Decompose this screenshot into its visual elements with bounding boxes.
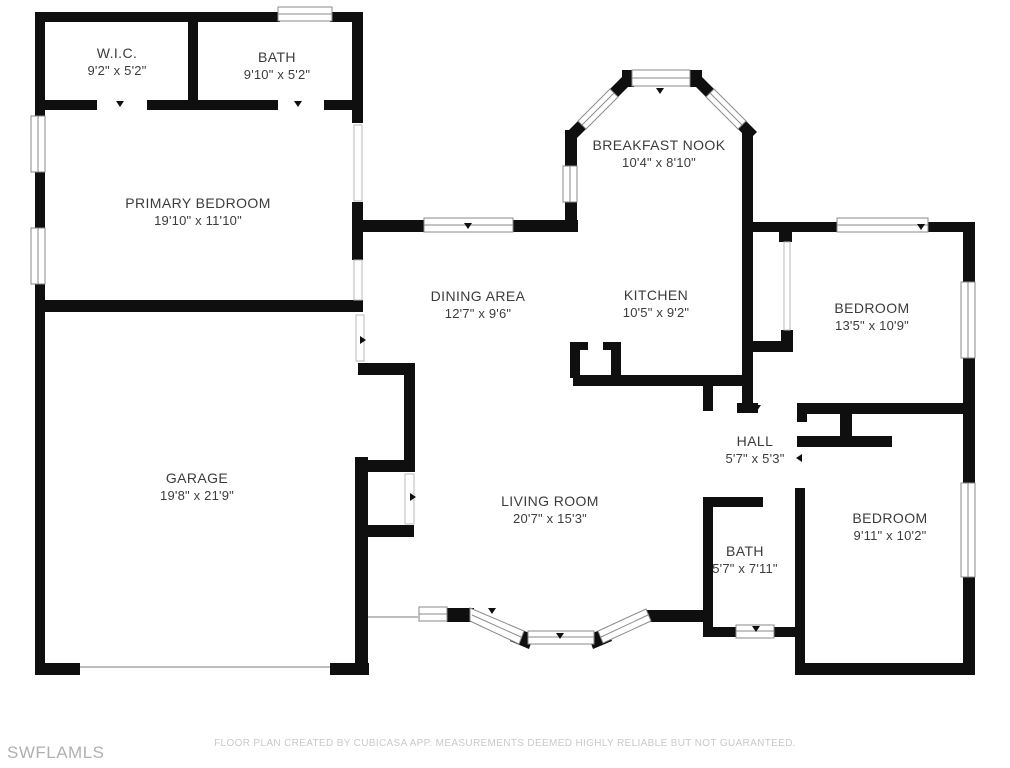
room-name: DINING AREA <box>431 288 526 306</box>
room-name: BATH <box>244 49 310 67</box>
room-dimensions: 13'5" x 10'9" <box>834 318 909 334</box>
room-label-bedroom-se: BEDROOM 9'11" x 10'2" <box>852 510 927 544</box>
room-label-bath-right: BATH 5'7" x 7'11" <box>712 543 778 577</box>
room-name: LIVING ROOM <box>501 493 599 511</box>
disclaimer-text: FLOOR PLAN CREATED BY CUBICASA APP. MEAS… <box>214 738 796 749</box>
room-dimensions: 10'5" x 9'2" <box>623 305 689 321</box>
room-name: KITCHEN <box>623 287 689 305</box>
room-name: BREAKFAST NOOK <box>593 137 726 155</box>
room-label-hall: HALL 5'7" x 5'3" <box>725 433 784 467</box>
room-label-breakfast-nook: BREAKFAST NOOK 10'4" x 8'10" <box>593 137 726 171</box>
room-dimensions: 10'4" x 8'10" <box>593 155 726 171</box>
room-dimensions: 20'7" x 15'3" <box>501 511 599 527</box>
room-name: W.I.C. <box>87 45 146 63</box>
room-name: BATH <box>712 543 778 561</box>
floor-plan-page: W.I.C. 9'2" x 5'2" BATH 9'10" x 5'2" PRI… <box>0 0 1010 768</box>
room-dimensions: 9'11" x 10'2" <box>852 528 927 544</box>
room-label-garage: GARAGE 19'8" x 21'9" <box>160 470 234 504</box>
mls-watermark: SWFLAMLS <box>7 743 105 763</box>
room-dimensions: 9'10" x 5'2" <box>244 67 310 83</box>
room-label-kitchen: KITCHEN 10'5" x 9'2" <box>623 287 689 321</box>
room-name: BEDROOM <box>834 300 909 318</box>
room-dimensions: 5'7" x 5'3" <box>725 451 784 467</box>
floor-plan-drawing <box>0 0 1010 768</box>
walls <box>35 12 975 675</box>
room-label-primary-bedroom: PRIMARY BEDROOM 19'10" x 11'10" <box>125 195 271 229</box>
room-label-bath-top: BATH 9'10" x 5'2" <box>244 49 310 83</box>
room-name: HALL <box>725 433 784 451</box>
room-dimensions: 12'7" x 9'6" <box>431 306 526 322</box>
room-dimensions: 9'2" x 5'2" <box>87 63 146 79</box>
room-label-dining-area: DINING AREA 12'7" x 9'6" <box>431 288 526 322</box>
garage-door-line <box>80 666 330 668</box>
room-name: BEDROOM <box>852 510 927 528</box>
room-dimensions: 19'8" x 21'9" <box>160 488 234 504</box>
room-dimensions: 19'10" x 11'10" <box>125 213 271 229</box>
room-label-living-room: LIVING ROOM 20'7" x 15'3" <box>501 493 599 527</box>
room-label-bedroom-ne: BEDROOM 13'5" x 10'9" <box>834 300 909 334</box>
room-dimensions: 5'7" x 7'11" <box>712 561 778 577</box>
room-name: GARAGE <box>160 470 234 488</box>
room-name: PRIMARY BEDROOM <box>125 195 271 213</box>
room-label-wic: W.I.C. 9'2" x 5'2" <box>87 45 146 79</box>
